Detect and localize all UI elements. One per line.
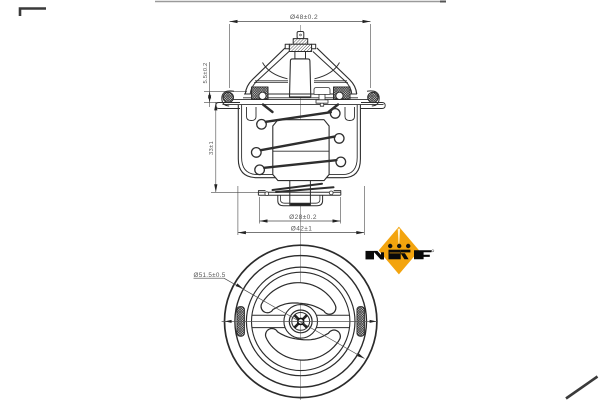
svg-text:Ø28±0.2: Ø28±0.2 bbox=[289, 214, 317, 221]
svg-text:Ø42±1: Ø42±1 bbox=[291, 225, 312, 232]
svg-text:33±1: 33±1 bbox=[209, 141, 215, 155]
svg-text:5.5±0.2: 5.5±0.2 bbox=[203, 62, 209, 83]
svg-text:Ø51.5±0.5: Ø51.5±0.5 bbox=[194, 272, 226, 279]
svg-text:Ø48±0.2: Ø48±0.2 bbox=[290, 14, 318, 21]
